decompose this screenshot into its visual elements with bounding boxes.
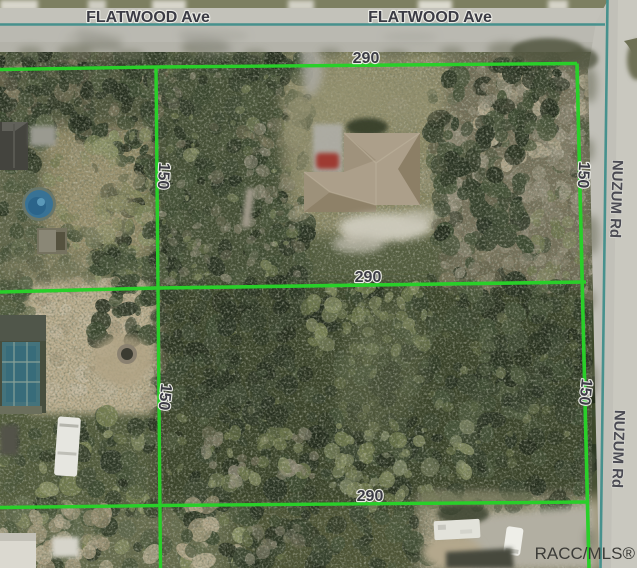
svg-text:150: 150: [575, 378, 595, 406]
svg-text:NUZUM Rd: NUZUM Rd: [608, 410, 628, 489]
svg-text:290: 290: [355, 269, 382, 286]
svg-text:RACC/MLS®: RACC/MLS®: [535, 544, 636, 563]
svg-text:NUZUM Rd: NUZUM Rd: [606, 160, 626, 239]
svg-text:FLATWOOD Ave: FLATWOOD Ave: [86, 9, 210, 26]
svg-text:290: 290: [357, 488, 384, 505]
svg-text:150: 150: [574, 161, 592, 189]
svg-text:290: 290: [353, 50, 380, 67]
svg-text:150: 150: [155, 383, 175, 411]
svg-text:150: 150: [154, 162, 172, 190]
svg-text:FLATWOOD Ave: FLATWOOD Ave: [368, 9, 492, 26]
